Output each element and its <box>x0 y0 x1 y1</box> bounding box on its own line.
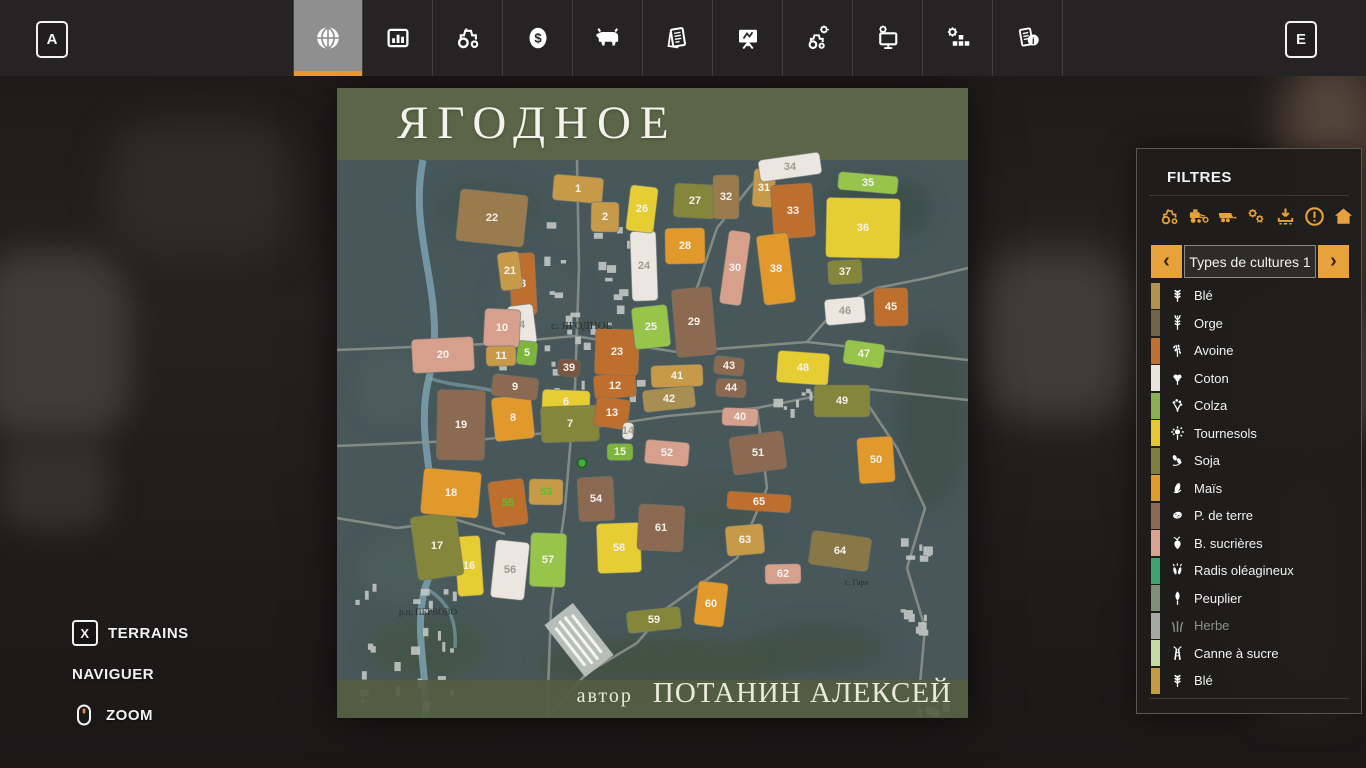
crop-label: Peuplier <box>1194 591 1242 606</box>
mouse-icon <box>72 703 96 727</box>
crop-color-swatch <box>1151 448 1160 474</box>
svg-text:29: 29 <box>688 316 700 328</box>
crop-color-swatch <box>1151 558 1160 584</box>
svg-text:54: 54 <box>590 493 603 505</box>
map-field-47[interactable]: 47 <box>843 339 886 368</box>
terrains-control: X TERRAINS <box>72 620 189 646</box>
crop-filter-row[interactable]: Soja <box>1137 447 1361 475</box>
crop-icon-wrap <box>1160 616 1194 635</box>
map-field-43[interactable]: 43 <box>713 355 745 377</box>
crop-filter-row[interactable]: Orge <box>1137 310 1361 338</box>
svg-text:45: 45 <box>885 301 897 313</box>
svg-text:11: 11 <box>495 350 507 362</box>
svg-text:41: 41 <box>671 370 683 382</box>
svg-text:50: 50 <box>870 454 882 466</box>
tab-animals[interactable] <box>573 0 643 76</box>
svg-text:15: 15 <box>614 446 626 458</box>
house-icon <box>1332 205 1355 228</box>
bottom-left-controls: X TERRAINS NAVIGUER ZOOM <box>72 620 189 747</box>
svg-text:37: 37 <box>839 266 851 278</box>
crop-label: P. de terre <box>1194 508 1253 523</box>
key-hint-x-label: X <box>80 626 89 641</box>
crop-filter-row[interactable]: Blé <box>1137 667 1361 695</box>
svg-text:32: 32 <box>720 191 732 203</box>
map-field-32[interactable]: 32 <box>713 175 739 219</box>
crop-filter-list: BléOrgeAvoineCotonColzaTournesolsSojaMaï… <box>1137 282 1361 695</box>
svg-text:1: 1 <box>575 183 581 195</box>
download-icon <box>1274 205 1297 228</box>
svg-text:52: 52 <box>661 447 673 459</box>
cow-icon <box>593 23 623 53</box>
zoom-label: ZOOM <box>106 707 153 724</box>
key-hint-x: X <box>72 620 98 646</box>
crop-icon-wrap <box>1160 314 1194 333</box>
map-field-21[interactable]: 21 <box>497 251 523 291</box>
chevron-left-icon: ‹ <box>1163 250 1170 273</box>
beet-icon <box>1168 534 1187 553</box>
crop-label: Colza <box>1194 398 1227 413</box>
grass-icon <box>1168 616 1187 635</box>
crop-color-swatch <box>1151 283 1160 309</box>
map-field-27[interactable]: 27 <box>673 183 717 219</box>
svg-text:33: 33 <box>787 205 799 217</box>
map-field-17[interactable]: 17 <box>410 511 464 581</box>
crop-color-swatch <box>1151 613 1160 639</box>
trailer-icon <box>1216 205 1239 228</box>
svg-text:27: 27 <box>689 195 701 207</box>
crop-icon-wrap <box>1160 561 1194 580</box>
svg-text:р.п. ПЕРВОВО: р.п. ПЕРВОВО <box>399 607 458 617</box>
map-canvas[interactable]: 1234567891011121314151617181920212223242… <box>337 88 968 718</box>
svg-text:31: 31 <box>758 182 770 194</box>
crop-icon-wrap <box>1160 671 1194 690</box>
crop-color-swatch <box>1151 585 1160 611</box>
tractor-gear-icon <box>803 23 833 53</box>
map-field-61[interactable]: 61 <box>637 504 685 552</box>
svg-text:17: 17 <box>431 540 443 552</box>
filter-harvesters-button[interactable] <box>1186 204 1210 228</box>
crop-filter-row[interactable]: Herbe <box>1137 612 1361 640</box>
map-view[interactable]: 1234567891011121314151617181920212223242… <box>337 88 968 718</box>
svg-text:10: 10 <box>496 322 508 334</box>
svg-text:19: 19 <box>455 419 467 431</box>
selector-prev-button[interactable]: ‹ <box>1151 245 1182 278</box>
svg-text:64: 64 <box>834 545 847 557</box>
poplar-icon <box>1168 589 1187 608</box>
crop-color-swatch <box>1151 503 1160 529</box>
map-field-46[interactable]: 46 <box>824 296 866 325</box>
potato-icon <box>1168 506 1187 525</box>
map-field-55[interactable]: 55 <box>487 478 528 528</box>
map-author-label: автор <box>577 685 633 708</box>
crop-label: Blé <box>1194 288 1213 303</box>
map-field-20[interactable]: 20 <box>411 336 475 373</box>
map-field-41[interactable]: 41 <box>651 364 704 388</box>
svg-text:12: 12 <box>609 380 621 392</box>
svg-text:i: i <box>1031 36 1034 46</box>
svg-text:36: 36 <box>857 222 869 234</box>
wheat-icon <box>1168 286 1187 305</box>
map-field-58[interactable]: 58 <box>596 522 642 574</box>
oat-icon <box>1168 341 1187 360</box>
map-field-2[interactable]: 2 <box>591 202 620 232</box>
tab-statistics[interactable] <box>363 0 433 76</box>
filter-buildings-button[interactable] <box>1331 204 1355 228</box>
svg-text:60: 60 <box>705 598 717 610</box>
crop-color-swatch <box>1151 393 1160 419</box>
background-blur <box>0 440 110 530</box>
sheets-icon <box>663 23 693 53</box>
tractor-icon <box>1158 205 1181 228</box>
tab-contracts[interactable] <box>643 0 713 76</box>
crop-filter-row[interactable]: Radis oléagineux <box>1137 557 1361 585</box>
svg-text:62: 62 <box>777 568 789 580</box>
svg-text:25: 25 <box>645 321 657 333</box>
svg-text:35: 35 <box>862 177 874 189</box>
map-field-49[interactable]: 49 <box>814 385 870 417</box>
chevron-right-icon: › <box>1330 250 1337 273</box>
crop-icon-wrap <box>1160 644 1194 663</box>
svg-text:26: 26 <box>636 203 648 215</box>
tab-game-settings[interactable] <box>853 0 923 76</box>
svg-text:51: 51 <box>752 447 764 459</box>
svg-text:13: 13 <box>606 407 618 419</box>
svg-text:22: 22 <box>486 212 498 224</box>
crop-filter-row[interactable]: Avoine <box>1137 337 1361 365</box>
crop-icon-wrap <box>1160 396 1194 415</box>
crop-label: B. sucrières <box>1194 536 1263 551</box>
zoom-control: ZOOM <box>72 703 189 727</box>
map-field-37[interactable]: 37 <box>827 259 862 285</box>
stats-icon <box>383 23 413 53</box>
filter-trailers-button[interactable] <box>1215 204 1239 228</box>
filters-panel: FILTRES ‹ Types de cultures 1 › BléOrgeA… <box>1136 148 1362 714</box>
map-field-36[interactable]: 36 <box>825 197 900 258</box>
crop-icon-wrap <box>1160 506 1194 525</box>
svg-text:65: 65 <box>753 496 765 508</box>
svg-text:44: 44 <box>725 382 738 394</box>
warning-icon <box>1303 205 1326 228</box>
crop-label: Tournesols <box>1194 426 1257 441</box>
top-menu-bar: A $i E <box>0 0 1366 76</box>
crop-icon-wrap <box>1160 589 1194 608</box>
crop-filter-row[interactable]: Maïs <box>1137 475 1361 503</box>
map-field-12[interactable]: 12 <box>593 372 637 400</box>
crop-filter-row[interactable]: B. sucrières <box>1137 530 1361 558</box>
svg-text:8: 8 <box>510 412 516 424</box>
tab-production[interactable] <box>713 0 783 76</box>
svg-text:43: 43 <box>723 360 735 372</box>
crop-label: Coton <box>1194 371 1229 386</box>
svg-text:40: 40 <box>734 411 746 423</box>
filter-icon-row <box>1157 204 1355 228</box>
map-field-26[interactable]: 26 <box>625 184 658 233</box>
map-author-line: автор ПОТАНИН АЛЕКСЕЙ <box>577 677 952 710</box>
navigate-label: NAVIGUER <box>72 666 154 683</box>
crop-filter-row[interactable]: Tournesols <box>1137 420 1361 448</box>
map-field-28[interactable]: 28 <box>665 228 706 265</box>
crop-filter-row[interactable]: Peuplier <box>1137 585 1361 613</box>
wheat-icon <box>1168 671 1187 690</box>
map-field-50[interactable]: 50 <box>856 436 895 484</box>
svg-text:5: 5 <box>524 347 530 359</box>
svg-text:$: $ <box>534 31 542 46</box>
corn-icon <box>1168 479 1187 498</box>
background-blur <box>0 250 130 440</box>
svg-text:7: 7 <box>567 418 573 430</box>
svg-text:56: 56 <box>504 564 516 576</box>
crop-icon-wrap <box>1160 451 1194 470</box>
svg-text:59: 59 <box>648 614 660 626</box>
svg-text:24: 24 <box>638 260 651 272</box>
map-field-15[interactable]: 15 <box>607 444 633 461</box>
map-field-39[interactable]: 39 <box>557 358 581 377</box>
map-field-44[interactable]: 44 <box>716 378 747 398</box>
map-field-25[interactable]: 25 <box>631 304 671 350</box>
tab-vehicle-settings[interactable] <box>783 0 853 76</box>
filter-tractors-button[interactable] <box>1157 204 1181 228</box>
map-field-54[interactable]: 54 <box>577 476 615 522</box>
key-hint-left: A <box>36 21 68 58</box>
map-field-10[interactable]: 10 <box>483 308 521 348</box>
player-marker <box>578 459 587 468</box>
selector-next-button[interactable]: › <box>1318 245 1349 278</box>
terrains-label: TERRAINS <box>108 625 189 642</box>
tab-finances[interactable]: $ <box>503 0 573 76</box>
map-field-7[interactable]: 7 <box>540 405 599 443</box>
map-field-62[interactable]: 62 <box>765 564 801 585</box>
svg-text:30: 30 <box>729 262 741 274</box>
svg-text:23: 23 <box>611 346 623 358</box>
menu-tabs: $i <box>293 0 1063 76</box>
map-field-65[interactable]: 65 <box>726 491 791 513</box>
svg-text:58: 58 <box>613 542 625 554</box>
map-field-45[interactable]: 45 <box>874 288 909 327</box>
svg-text:28: 28 <box>679 240 691 252</box>
background-blur <box>110 120 290 260</box>
crop-icon-wrap <box>1160 369 1194 388</box>
svg-text:46: 46 <box>839 305 851 317</box>
svg-text:53: 53 <box>540 486 552 498</box>
map-field-56[interactable]: 56 <box>490 539 530 600</box>
crop-color-swatch <box>1151 668 1160 694</box>
harvester-icon <box>1187 205 1210 228</box>
filter-warnings-button[interactable] <box>1302 204 1326 228</box>
monitor-gear-icon <box>873 23 903 53</box>
tractor-icon <box>453 23 483 53</box>
background-blur <box>980 250 1130 420</box>
svg-text:39: 39 <box>563 362 575 374</box>
map-field-1[interactable]: 1 <box>552 174 604 204</box>
crop-label: Soja <box>1194 453 1220 468</box>
map-field-63[interactable]: 63 <box>725 523 765 556</box>
crop-label: Maïs <box>1194 481 1222 496</box>
map-field-18[interactable]: 18 <box>420 468 482 519</box>
svg-text:48: 48 <box>797 362 809 374</box>
crop-filter-row[interactable]: Coton <box>1137 365 1361 393</box>
filter-unloading-button[interactable] <box>1273 204 1297 228</box>
svg-text:18: 18 <box>445 487 457 499</box>
filter-category-selector: ‹ Types de cultures 1 › <box>1151 245 1349 278</box>
crop-label: Canne à sucre <box>1194 646 1279 661</box>
map-field-51[interactable]: 51 <box>729 430 788 475</box>
barley-icon <box>1168 314 1187 333</box>
map-author-name: ПОТАНИН АЛЕКСЕЙ <box>653 677 952 710</box>
selector-label: Types de cultures 1 <box>1189 254 1310 270</box>
svg-text:16: 16 <box>463 560 475 572</box>
svg-text:38: 38 <box>770 263 782 275</box>
tab-map[interactable] <box>293 0 363 76</box>
sunflower-icon <box>1168 424 1187 443</box>
map-field-42[interactable]: 42 <box>642 385 696 412</box>
crop-color-swatch <box>1151 420 1160 446</box>
key-hint-right: E <box>1285 21 1317 58</box>
gears-icon <box>1245 205 1268 228</box>
sugarcane-icon <box>1168 644 1187 663</box>
svg-text:63: 63 <box>739 534 751 546</box>
svg-text:47: 47 <box>858 348 870 360</box>
map-field-40[interactable]: 40 <box>722 407 759 426</box>
crop-icon-wrap <box>1160 424 1194 443</box>
soybean-icon <box>1168 451 1187 470</box>
map-title: ЯГОДНОЕ <box>397 96 678 150</box>
map-field-52[interactable]: 52 <box>644 439 690 467</box>
crop-icon-wrap <box>1160 341 1194 360</box>
svg-text:14: 14 <box>622 425 635 437</box>
crop-color-swatch <box>1151 365 1160 391</box>
svg-text:с. ЯГОДНОЕ: с. ЯГОДНОЕ <box>551 320 613 332</box>
navigate-control: NAVIGUER <box>72 666 189 683</box>
crop-label: Orge <box>1194 316 1223 331</box>
map-field-33[interactable]: 33 <box>770 183 816 240</box>
tab-general-settings[interactable] <box>923 0 993 76</box>
divider <box>1149 195 1349 196</box>
svg-text:с. Гари: с. Гари <box>845 578 870 587</box>
crop-color-swatch <box>1151 338 1160 364</box>
tab-garage[interactable] <box>433 0 503 76</box>
radish-icon <box>1168 561 1187 580</box>
crop-filter-row[interactable]: Blé <box>1137 282 1361 310</box>
svg-text:34: 34 <box>784 161 797 173</box>
crop-color-swatch <box>1151 475 1160 501</box>
crop-filter-row[interactable]: Colza <box>1137 392 1361 420</box>
crop-label: Blé <box>1194 673 1213 688</box>
map-field-29[interactable]: 29 <box>671 286 717 357</box>
key-hint-right-label: E <box>1296 31 1306 48</box>
map-field-23[interactable]: 23 <box>594 328 640 376</box>
map-field-8[interactable]: 8 <box>491 394 535 442</box>
crop-icon-wrap <box>1160 479 1194 498</box>
canola-icon <box>1168 396 1187 415</box>
filter-tools-button[interactable] <box>1244 204 1268 228</box>
map-field-11[interactable]: 11 <box>486 346 516 367</box>
selector-current: Types de cultures 1 <box>1184 245 1316 278</box>
crop-icon-wrap <box>1160 286 1194 305</box>
map-field-22[interactable]: 22 <box>455 189 528 248</box>
key-hint-left-label: A <box>47 31 58 48</box>
map-field-24[interactable]: 24 <box>630 231 658 302</box>
svg-text:42: 42 <box>663 393 675 405</box>
map-field-48[interactable]: 48 <box>776 350 830 386</box>
crop-filter-row[interactable]: P. de terre <box>1137 502 1361 530</box>
globe-icon <box>313 23 343 53</box>
gear-blocks-icon <box>943 23 973 53</box>
crop-color-swatch <box>1151 640 1160 666</box>
info-icon: i <box>1013 23 1043 53</box>
presentation-icon <box>733 23 763 53</box>
crop-label: Herbe <box>1194 618 1229 633</box>
map-field-19[interactable]: 19 <box>436 390 485 461</box>
map-field-60[interactable]: 60 <box>693 580 728 627</box>
mouse-icon <box>72 703 96 727</box>
svg-text:49: 49 <box>836 395 848 407</box>
crop-color-swatch <box>1151 530 1160 556</box>
map-field-57[interactable]: 57 <box>529 532 567 587</box>
crop-icon-wrap <box>1160 534 1194 553</box>
svg-text:9: 9 <box>512 381 518 393</box>
cotton-icon <box>1168 369 1187 388</box>
crop-filter-row[interactable]: Canne à sucre <box>1137 640 1361 668</box>
dollar-icon: $ <box>523 23 553 53</box>
tab-help[interactable]: i <box>993 0 1063 76</box>
crop-label: Radis oléagineux <box>1194 563 1294 578</box>
map-field-53[interactable]: 53 <box>529 479 563 506</box>
filters-title: FILTRES <box>1167 169 1232 186</box>
svg-text:20: 20 <box>437 349 449 361</box>
crop-color-swatch <box>1151 310 1160 336</box>
svg-text:2: 2 <box>602 211 608 223</box>
crop-label: Avoine <box>1194 343 1234 358</box>
svg-text:61: 61 <box>655 522 667 534</box>
svg-text:55: 55 <box>502 497 514 509</box>
divider <box>1149 698 1349 699</box>
svg-text:21: 21 <box>504 265 516 277</box>
svg-text:57: 57 <box>542 554 554 566</box>
